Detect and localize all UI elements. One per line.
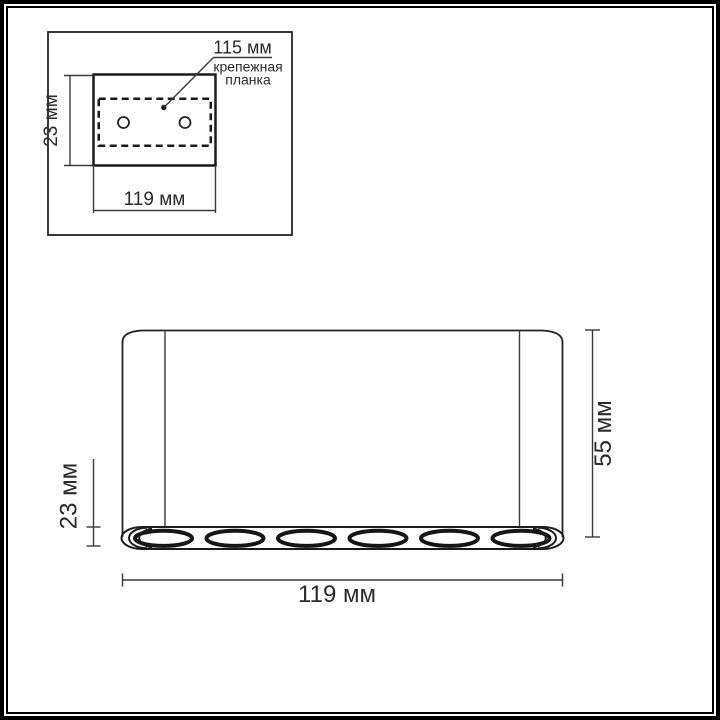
mounting-hole-right [180, 117, 191, 128]
lens-section-label: 23 мм [56, 463, 83, 529]
lens-ellipse [350, 531, 407, 546]
plate-dimension-label: 115 мм [213, 38, 271, 58]
height-dimension: 55 мм [585, 330, 617, 537]
inset-width-label: 119 мм [124, 189, 186, 210]
lens-ellipse [421, 531, 478, 546]
body-outline [123, 331, 563, 538]
top-view-outline [94, 75, 216, 166]
inset-width-dimension: 119 мм [94, 167, 216, 213]
lens-ellipse [135, 531, 192, 546]
bottom-rim-outline [121, 527, 563, 549]
lens-ellipse [278, 531, 335, 546]
front-view: 55 мм 23 мм 119 мм [56, 330, 618, 608]
height-label: 55 мм [590, 400, 617, 466]
width-label: 119 мм [298, 581, 376, 608]
lens-section-dimension: 23 мм [56, 459, 101, 546]
mounting-plate-dashed-outline [99, 99, 211, 146]
lens-row [135, 531, 550, 546]
page-background: 115 мм крепежная планка 23 мм 119 мм [0, 0, 720, 720]
top-view-inset: 115 мм крепежная планка 23 мм 119 мм [41, 32, 292, 235]
width-dimension: 119 мм [123, 574, 563, 609]
plate-label-line2: планка [225, 72, 271, 88]
lens-ellipse [207, 531, 264, 546]
dimension-diagram: 115 мм крепежная планка 23 мм 119 мм [0, 0, 720, 720]
mounting-hole-left [118, 117, 129, 128]
inset-depth-label: 23 мм [41, 94, 62, 147]
lens-ellipse [493, 531, 550, 546]
